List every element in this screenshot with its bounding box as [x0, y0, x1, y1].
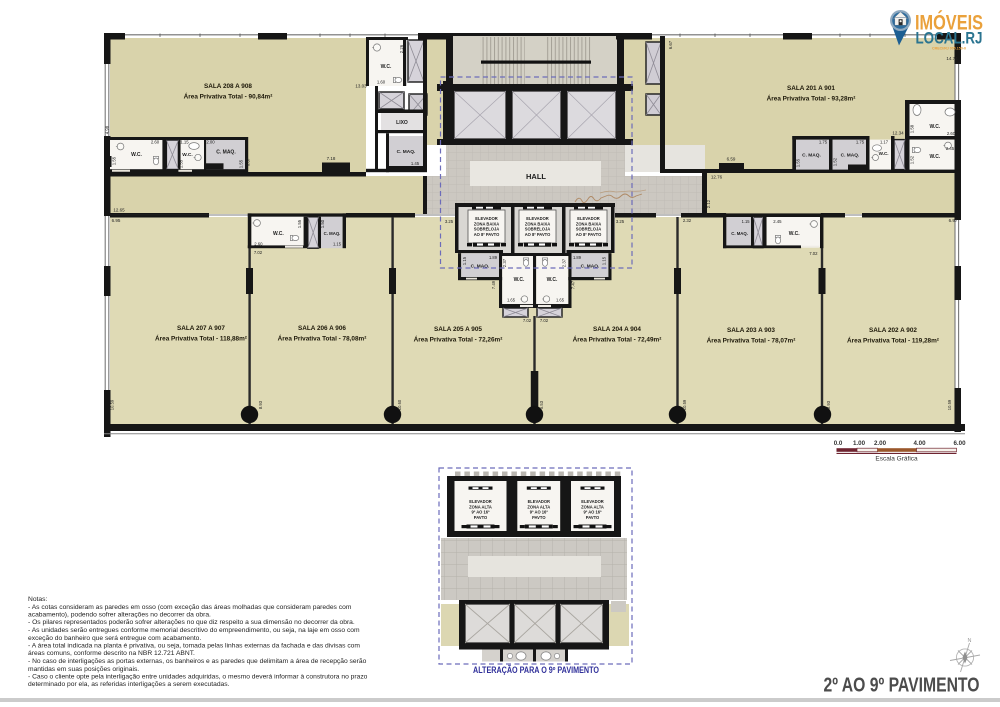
svg-text:W.C.: W.C. — [879, 151, 889, 156]
svg-text:SALA 203 A 903: SALA 203 A 903 — [727, 327, 775, 334]
svg-text:1.45: 1.45 — [411, 161, 420, 166]
svg-text:9º AO 16º: 9º AO 16º — [530, 510, 549, 515]
svg-text:SALA 206 A 906: SALA 206 A 906 — [298, 325, 346, 332]
svg-text:1.89: 1.89 — [489, 255, 498, 260]
svg-text:ZONA ALTA: ZONA ALTA — [527, 504, 550, 509]
svg-text:W.C.: W.C. — [929, 124, 940, 130]
svg-text:2.37: 2.37 — [562, 258, 567, 267]
svg-text:2.60: 2.60 — [947, 131, 956, 136]
svg-text:- No caso de interligações as: - No caso de interligações as portas ext… — [28, 658, 367, 665]
svg-text:1.65: 1.65 — [507, 298, 516, 303]
svg-text:1.65: 1.65 — [556, 298, 565, 303]
svg-text:1.55: 1.55 — [239, 159, 244, 168]
svg-text:2.60: 2.60 — [151, 140, 160, 145]
svg-text:AO 8º PAVTO: AO 8º PAVTO — [525, 232, 551, 237]
svg-text:ZONA BAIXA: ZONA BAIXA — [474, 221, 499, 226]
svg-text:PAVTO: PAVTO — [586, 515, 600, 520]
svg-text:ELEVADOR: ELEVADOR — [577, 216, 599, 221]
svg-text:6.59: 6.59 — [727, 157, 736, 162]
svg-text:3.25: 3.25 — [616, 219, 625, 224]
svg-text:- As cotas consideram as pared: - As cotas consideram as paredes em osso… — [28, 604, 352, 611]
svg-text:PAVTO: PAVTO — [474, 515, 488, 520]
svg-text:1.17: 1.17 — [880, 140, 889, 145]
svg-text:W.C.: W.C. — [789, 231, 800, 237]
svg-text:7.02: 7.02 — [540, 318, 549, 323]
svg-text:1.60: 1.60 — [377, 80, 386, 85]
svg-text:7.49: 7.49 — [491, 280, 496, 289]
svg-text:mantidas em suas posições orig: mantidas em suas posições originais. — [28, 666, 139, 673]
svg-text:Área Privativa Total - 78,08m²: Área Privativa Total - 78,08m² — [278, 334, 367, 343]
svg-text:- A área total indicada na pla: - A área total indicada na planta é priv… — [28, 643, 360, 650]
svg-text:Área Privativa Total - 118,88m: Área Privativa Total - 118,88m² — [155, 334, 247, 343]
svg-text:Área Privativa Total - 93,28m²: Área Privativa Total - 93,28m² — [767, 94, 856, 103]
svg-text:1.50: 1.50 — [320, 219, 325, 228]
svg-text:W.C.: W.C. — [929, 154, 940, 160]
svg-text:2.32: 2.32 — [683, 218, 692, 223]
svg-text:7.02: 7.02 — [523, 318, 532, 323]
svg-text:1.15: 1.15 — [602, 256, 607, 265]
svg-text:2.00: 2.00 — [874, 440, 887, 447]
svg-text:6.97: 6.97 — [949, 218, 958, 223]
svg-text:2º AO 9º PAVIMENTO: 2º AO 9º PAVIMENTO — [824, 675, 980, 697]
svg-text:ZONA ALTA: ZONA ALTA — [581, 504, 604, 509]
svg-text:AO 8º PAVTO: AO 8º PAVTO — [474, 232, 500, 237]
svg-text:ZONA BAIXA: ZONA BAIXA — [576, 221, 601, 226]
svg-text:áreas comuns, conforme descrit: áreas comuns, conforme descrito na NBR 1… — [28, 650, 195, 657]
svg-text:2.00: 2.00 — [206, 140, 215, 145]
svg-text:8.93: 8.93 — [826, 400, 831, 409]
svg-text:- As unidades serão entregues: - As unidades serão entregues conforme m… — [28, 627, 360, 634]
svg-text:W.C.: W.C. — [514, 277, 525, 283]
svg-text:12.65: 12.65 — [113, 208, 125, 213]
svg-text:Área Privativa Total - 119,28m: Área Privativa Total - 119,28m² — [847, 336, 939, 345]
svg-text:PAVTO: PAVTO — [532, 515, 546, 520]
svg-text:6.67: 6.67 — [668, 40, 673, 49]
svg-text:C. MAQ.: C. MAQ. — [802, 153, 821, 159]
svg-text:8.93: 8.93 — [258, 400, 263, 409]
svg-text:12.76: 12.76 — [711, 175, 723, 180]
svg-text:0.0: 0.0 — [834, 440, 843, 447]
svg-text:W.C.: W.C. — [381, 64, 392, 70]
svg-text:6.00: 6.00 — [953, 440, 966, 447]
svg-text:ELEVADOR: ELEVADOR — [581, 499, 603, 504]
svg-text:10.59: 10.59 — [110, 399, 115, 410]
svg-text:acabamento), podendo sofrer al: acabamento), podendo sofrer alterações n… — [28, 612, 211, 619]
svg-text:W.C.: W.C. — [273, 231, 284, 237]
svg-text:10.59: 10.59 — [682, 399, 687, 410]
svg-text:ELEVADOR: ELEVADOR — [528, 499, 550, 504]
svg-text:9º AO 16º: 9º AO 16º — [583, 510, 602, 515]
svg-text:C. MAQ.: C. MAQ. — [324, 231, 341, 236]
svg-text:- Caso o cliente opte pela int: - Caso o cliente opte pela interligação … — [28, 674, 368, 681]
svg-text:C. MAQ.: C. MAQ. — [731, 231, 748, 236]
svg-text:LIXO: LIXO — [396, 120, 408, 126]
svg-text:CRECI/RJ 005.150-0: CRECI/RJ 005.150-0 — [932, 47, 966, 51]
svg-text:N: N — [968, 638, 972, 644]
svg-text:1.15: 1.15 — [742, 219, 751, 224]
svg-text:1.52: 1.52 — [910, 155, 915, 164]
svg-text:2.37: 2.37 — [502, 258, 507, 267]
svg-text:2.45: 2.45 — [773, 219, 782, 224]
svg-text:SALA 202 A 902: SALA 202 A 902 — [869, 327, 917, 334]
svg-text:Notas:: Notas: — [28, 596, 47, 603]
svg-text:9º AO 16º: 9º AO 16º — [471, 510, 490, 515]
svg-text:7.47: 7.47 — [571, 280, 576, 289]
svg-text:1.52: 1.52 — [833, 157, 838, 166]
svg-text:7.18: 7.18 — [327, 156, 336, 161]
svg-text:1.15: 1.15 — [180, 140, 189, 145]
svg-text:ELEVADOR: ELEVADOR — [526, 216, 548, 221]
svg-text:SALA 207 A 907: SALA 207 A 907 — [177, 325, 225, 332]
svg-text:Área Privativa Total - 78,07m²: Área Privativa Total - 78,07m² — [707, 336, 796, 345]
svg-text:ELEVADOR: ELEVADOR — [475, 216, 497, 221]
svg-text:5.53: 5.53 — [539, 400, 544, 409]
svg-text:exceção do banheiro que será e: exceção do banheiro que será entregue co… — [28, 635, 201, 642]
svg-text:W.C.: W.C. — [182, 152, 192, 158]
svg-text:1.15: 1.15 — [333, 242, 342, 247]
svg-text:13.03: 13.03 — [355, 84, 367, 89]
svg-text:7.02: 7.02 — [254, 250, 263, 255]
svg-text:12.34: 12.34 — [892, 131, 904, 136]
svg-text:C. MAQ.: C. MAQ. — [841, 153, 860, 159]
svg-text:HALL: HALL — [526, 172, 546, 181]
svg-text:1.75: 1.75 — [856, 140, 865, 145]
svg-text:SALA 205 A 905: SALA 205 A 905 — [434, 326, 482, 333]
svg-text:SOBRELOJA: SOBRELOJA — [525, 227, 551, 232]
svg-text:1.55: 1.55 — [297, 219, 302, 228]
svg-text:ZONA ALTA: ZONA ALTA — [469, 504, 492, 509]
svg-text:1.89: 1.89 — [573, 255, 582, 260]
svg-text:ALTERAÇÃO PARA O 9º PAVIMENTO: ALTERAÇÃO PARA O 9º PAVIMENTO — [473, 665, 599, 675]
svg-text:1.55: 1.55 — [179, 159, 184, 168]
svg-text:W.C.: W.C. — [131, 152, 142, 158]
svg-text:1.75: 1.75 — [819, 140, 828, 145]
svg-text:1.00: 1.00 — [853, 440, 866, 447]
svg-text:2.45: 2.45 — [946, 146, 955, 151]
svg-text:1.55: 1.55 — [796, 158, 801, 167]
svg-text:SOBRELOJA: SOBRELOJA — [474, 227, 500, 232]
svg-text:Escala Gráfica: Escala Gráfica — [875, 456, 918, 463]
svg-text:10.59: 10.59 — [947, 399, 952, 410]
svg-text:SALA 201 A 901: SALA 201 A 901 — [787, 85, 835, 92]
svg-text:Área Privativa Total - 90,84m²: Área Privativa Total - 90,84m² — [184, 92, 273, 101]
svg-text:1.55: 1.55 — [112, 156, 117, 165]
svg-text:LOCAL.RJ: LOCAL.RJ — [916, 30, 983, 48]
svg-text:C. MAQ.: C. MAQ. — [216, 150, 236, 156]
svg-text:ELEVADOR: ELEVADOR — [469, 499, 491, 504]
svg-text:4.98: 4.98 — [105, 125, 110, 134]
svg-text:determinado por ela, as referi: determinado por ela, as referidas interl… — [28, 681, 230, 688]
svg-text:ZONA BAIXA: ZONA BAIXA — [525, 221, 550, 226]
svg-text:2.12: 2.12 — [706, 199, 711, 208]
svg-text:7.02: 7.02 — [809, 251, 818, 256]
svg-text:6.67: 6.67 — [246, 157, 251, 166]
svg-text:AO 8º PAVTO: AO 8º PAVTO — [576, 232, 602, 237]
svg-text:- Os pilares representados pod: - Os pilares representados poderão sofre… — [28, 619, 355, 626]
svg-text:Área Privativa Total - 72,49m²: Área Privativa Total - 72,49m² — [573, 335, 662, 344]
svg-text:4.00: 4.00 — [913, 440, 926, 447]
svg-text:SOBRELOJA: SOBRELOJA — [576, 227, 602, 232]
svg-text:6.95: 6.95 — [112, 218, 121, 223]
svg-text:SALA 204 A 904: SALA 204 A 904 — [593, 326, 641, 333]
svg-text:Área Privativa Total - 72,26m²: Área Privativa Total - 72,26m² — [414, 335, 503, 344]
svg-text:C. MAQ.: C. MAQ. — [397, 149, 416, 155]
svg-text:W.C.: W.C. — [547, 277, 558, 283]
svg-text:3.25: 3.25 — [445, 219, 454, 224]
svg-text:10.60: 10.60 — [397, 399, 402, 410]
svg-text:1.15: 1.15 — [462, 256, 467, 265]
svg-text:1.58: 1.58 — [910, 124, 915, 133]
svg-text:SALA 208 A 908: SALA 208 A 908 — [204, 83, 252, 90]
svg-text:14.74: 14.74 — [946, 56, 958, 61]
